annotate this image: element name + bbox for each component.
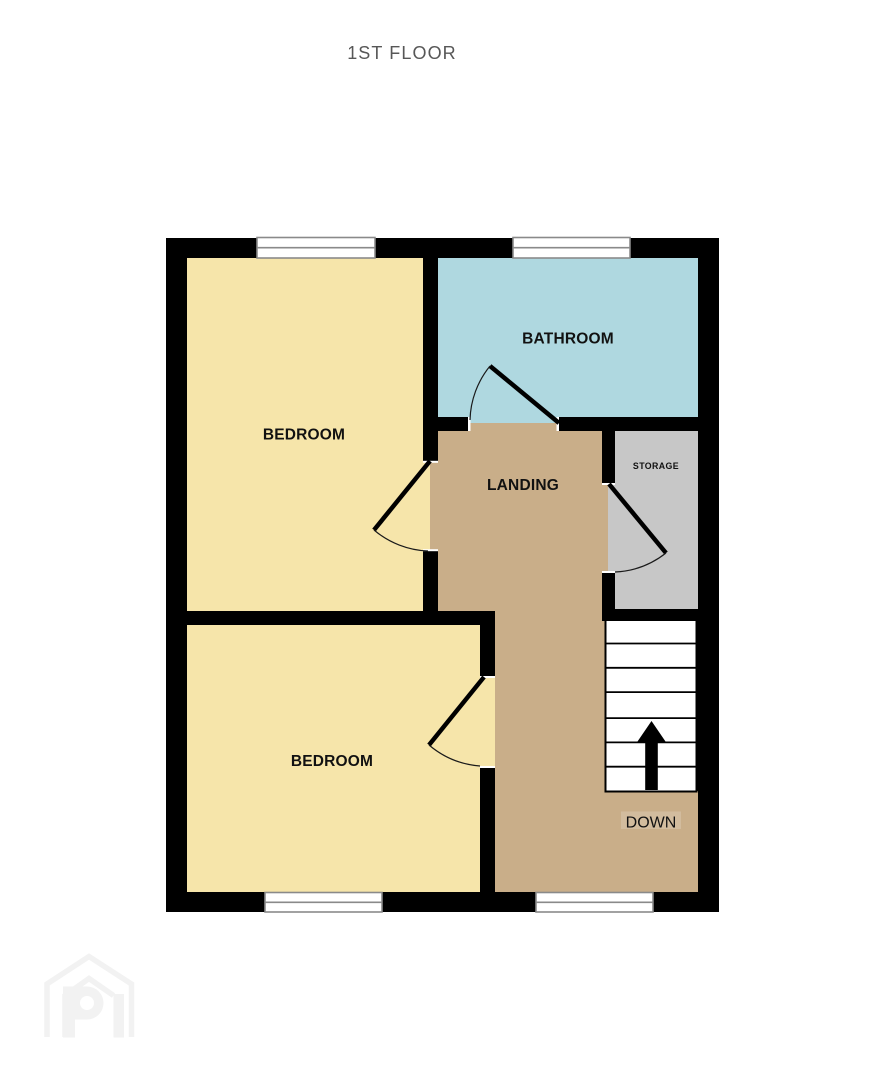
- svg-text:DOWN: DOWN: [626, 815, 677, 832]
- svg-text:1ST FLOOR: 1ST FLOOR: [347, 43, 457, 63]
- svg-text:BEDROOM: BEDROOM: [291, 753, 373, 770]
- svg-text:LANDING: LANDING: [487, 477, 559, 494]
- svg-text:STORAGE: STORAGE: [633, 461, 679, 471]
- svg-text:BATHROOM: BATHROOM: [522, 331, 614, 348]
- svg-text:BEDROOM: BEDROOM: [263, 427, 345, 444]
